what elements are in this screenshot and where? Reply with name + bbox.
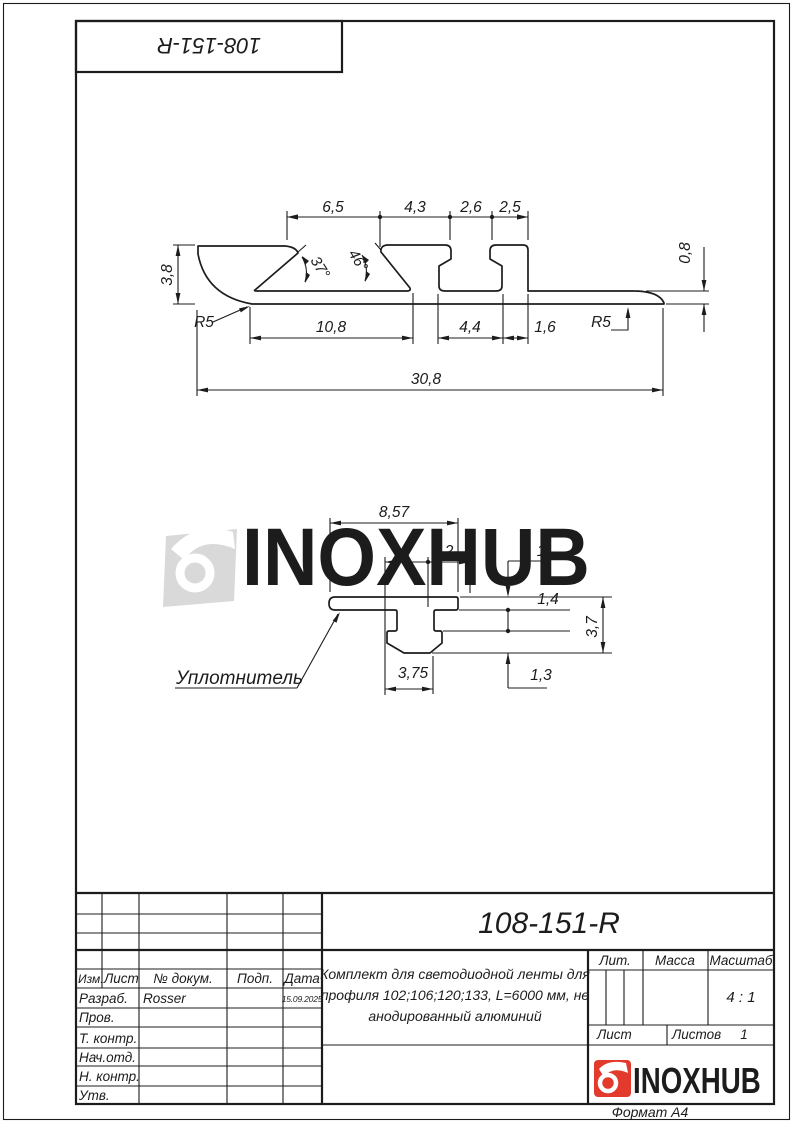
- dim-0-8: 0,8: [677, 242, 694, 264]
- dim-8-57: 8,57: [379, 504, 411, 521]
- angle-46: 46°: [345, 246, 371, 274]
- razrab-name: Rosser: [143, 991, 186, 1006]
- dim-3-8: 3,8: [159, 264, 176, 286]
- row-razrab: Разраб.: [79, 991, 128, 1006]
- description: Комплект для светодиодной ленты для проф…: [320, 966, 590, 1024]
- dim-3-75: 3,75: [398, 665, 429, 682]
- row-utv: Утв.: [78, 1088, 110, 1103]
- dim-0-8-group: 0,8: [646, 242, 709, 332]
- r5-right: R5: [591, 314, 611, 331]
- col-izm: Изм.: [78, 972, 104, 986]
- main-profile-view: 6,5 4,3 2,6 2,5 3,8 37° 4: [159, 199, 709, 396]
- dim-6-5: 6,5: [322, 199, 344, 216]
- col-list: Лист: [103, 971, 139, 986]
- dim-r5-left-group: R5: [194, 306, 250, 331]
- col-ndok: № докум.: [153, 971, 212, 986]
- logo-text: INOXHUB: [633, 1061, 761, 1101]
- designation: 108-151-R: [478, 907, 620, 940]
- description-line3: анодированный алюминий: [368, 1008, 541, 1024]
- title-block: Изм. Лист № докум. Подп. Дата Разраб. Ro…: [76, 893, 774, 1120]
- dim-1-3-group: 1,3: [506, 653, 553, 688]
- col-podp: Подп.: [237, 971, 273, 986]
- lit-label: Лит.: [598, 953, 631, 968]
- razrab-date: 15.09.2025: [282, 994, 323, 1004]
- logo-cell: INOXHUB: [594, 1060, 761, 1101]
- lit-massa-masshtab: Лит. Масса Масштаб 4 : 1 Лист Листов 1: [588, 950, 774, 1045]
- dim-2-left: 2: [401, 543, 411, 560]
- dim-angle-37-group: 37°: [298, 245, 333, 283]
- dim-1-3: 1,3: [530, 667, 552, 684]
- dim-4-4: 4,4: [459, 319, 481, 336]
- dim-30-8: 30,8: [411, 371, 442, 388]
- dim-3-7-group: 3,7: [432, 597, 612, 653]
- angle-37: 37°: [307, 253, 333, 281]
- format-label: Формат А4: [612, 1104, 689, 1120]
- row-tkontr: Т. контр.: [79, 1031, 137, 1046]
- listov-label: Листов: [671, 1027, 721, 1042]
- dim-top-chain: 6,5 4,3 2,6 2,5: [287, 199, 528, 247]
- description-line2: профиля 102;106;120;133, L=6000 мм, не: [321, 987, 590, 1003]
- col-data: Дата: [282, 971, 320, 986]
- row-nachotd: Нач.отд.: [79, 1050, 136, 1065]
- seal-profile-outline: [329, 597, 458, 653]
- massa-label: Масса: [655, 953, 695, 968]
- dim-2-right: 2: [444, 543, 454, 560]
- dim-r5-right-group: R5: [591, 307, 630, 331]
- list-label: Лист: [596, 1027, 632, 1042]
- dim-2-5: 2,5: [498, 199, 521, 216]
- drawing-sheet: 108-151-R INOXHUB 6,5 4,3 2,6 2,: [0, 0, 793, 1123]
- main-profile-outline: [198, 245, 664, 304]
- row-nkontr: Н. контр.: [79, 1069, 140, 1084]
- description-line1: Комплект для светодиодной ленты для: [320, 966, 590, 982]
- dim-1: 1: [537, 543, 546, 560]
- masshtab-label: Масштаб: [709, 953, 772, 968]
- top-stamp-number: 108-151-R: [157, 33, 261, 58]
- dim-1-6: 1,6: [534, 319, 556, 336]
- dim-angle-46-group: 46°: [345, 243, 381, 282]
- dim-3-7: 3,7: [584, 615, 601, 638]
- seal-label-group: Уплотнитель: [175, 612, 340, 689]
- listov-value: 1: [740, 1027, 748, 1042]
- dim-3-75-group: 3,75: [385, 656, 433, 694]
- scale-value: 4 : 1: [726, 989, 755, 1006]
- dim-2-6: 2,6: [459, 199, 482, 216]
- row-prov: Пров.: [79, 1010, 115, 1025]
- seal-label: Уплотнитель: [175, 668, 303, 689]
- dim-10-8: 10,8: [316, 319, 347, 336]
- watermark: INOXHUB: [163, 511, 590, 607]
- dim-4-3: 4,3: [404, 199, 426, 216]
- dim-3-8-group: 3,8: [159, 245, 195, 304]
- signature-table: Изм. Лист № докум. Подп. Дата Разраб. Ro…: [76, 893, 323, 1104]
- dim-1-4: 1,4: [537, 591, 559, 608]
